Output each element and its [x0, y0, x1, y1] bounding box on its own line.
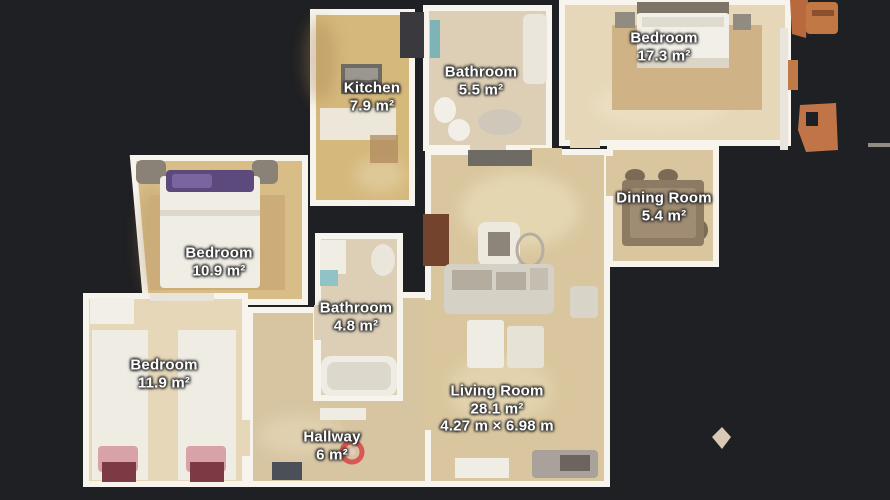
- bedroom-large-furniture: [612, 2, 762, 110]
- floorplan-canvas[interactable]: [0, 0, 890, 500]
- floorplan-viewer[interactable]: Kitchen 7.9 m² Bathroom 5.5 m² Bedroom 1…: [0, 0, 890, 500]
- bedroom-mid-furniture: [136, 160, 285, 290]
- dining-furniture: [622, 169, 708, 246]
